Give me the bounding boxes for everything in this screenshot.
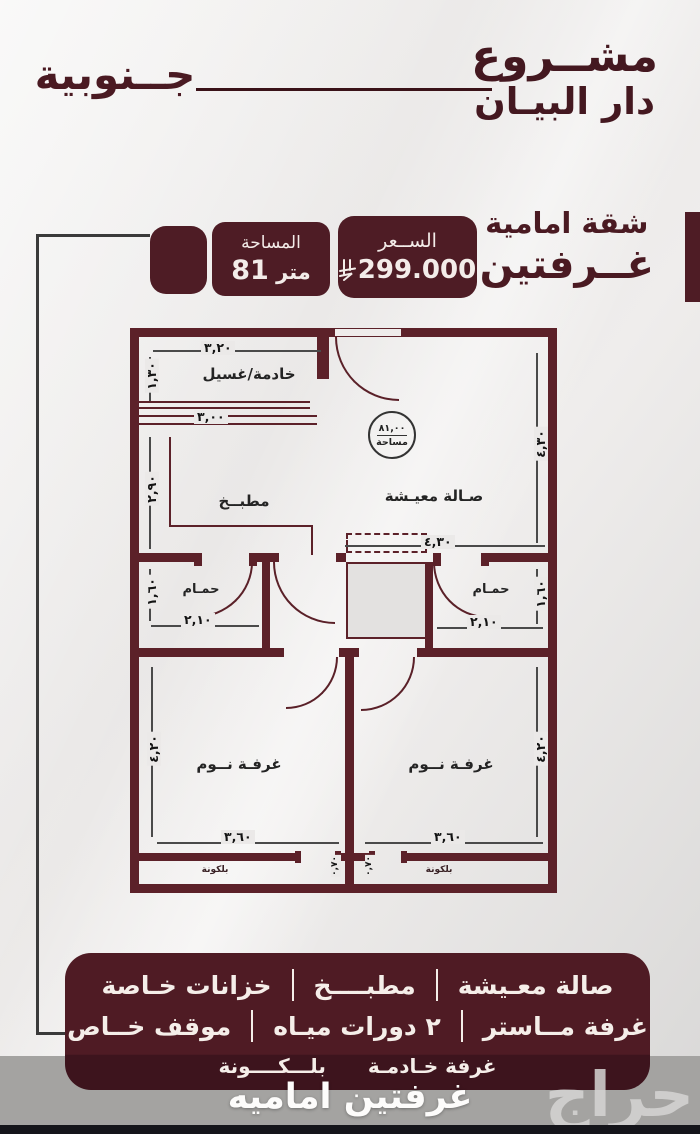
- riyal-symbol-icon: [339, 259, 356, 281]
- features-row-2: غرفة مــاستر ٢ دورات ميـاه موقف خــاص: [65, 1010, 650, 1042]
- dim-bed-left-height: ٤,٢٠: [147, 732, 161, 766]
- bedroom-divider-wall: [345, 657, 354, 884]
- door-jamb: [295, 851, 301, 863]
- apartment-type: شقة امامية غــرفتين: [480, 206, 654, 289]
- bedroom-left-door-arc: [286, 657, 338, 709]
- apartment-type-line1: شقة امامية: [480, 206, 654, 241]
- dim-maid-height: ١,٣٠: [145, 359, 159, 393]
- price-label: الســعر: [338, 230, 477, 252]
- feature-parking: موقف خــاص: [67, 1012, 231, 1041]
- bathroom-wall: [262, 562, 270, 648]
- dim-bath-left-height: ١,٦٠: [145, 575, 159, 609]
- wall-segment: [139, 553, 194, 562]
- price-value-row: 299.000: [338, 255, 477, 285]
- feature-separator: [461, 1010, 463, 1042]
- door-jamb: [401, 851, 407, 863]
- duct-dashed-outline: [346, 533, 427, 553]
- project-name: دار البيـان: [471, 81, 658, 122]
- feature-separator: [251, 1010, 253, 1042]
- kitchen-counter-line: [169, 437, 171, 527]
- hall-door-arc: [273, 562, 335, 624]
- bedroom-right-door-arc: [361, 657, 415, 711]
- room-label-bath-left: حمـام: [183, 582, 220, 597]
- price-value: 299.000: [358, 255, 476, 285]
- stamp-value: ٨١,٠٠: [379, 423, 406, 434]
- room-label-maid-laundry: خادمة/غسيل: [202, 365, 295, 383]
- connector-line-left: [36, 234, 39, 1034]
- area-badge: المساحة 81 متر: [212, 222, 330, 296]
- wall-segment: [487, 553, 548, 562]
- area-value: 81 متر: [212, 255, 330, 286]
- stamp-divider: [377, 435, 408, 436]
- shaft-box: [346, 562, 427, 639]
- dim-counter-width: ٣,٠٠: [194, 410, 228, 424]
- kitchen-counter-line: [169, 525, 313, 527]
- bottom-strip: [0, 1125, 700, 1134]
- feature-closets: خزانات خـاصة: [102, 971, 272, 1000]
- room-label-bed-right: غرفـة نــوم: [408, 755, 493, 773]
- counter-line: [139, 423, 317, 425]
- price-badge: الســعر 299.000: [338, 216, 477, 298]
- connector-line-top: [36, 234, 150, 237]
- counter-line: [139, 401, 310, 403]
- flyer-page: { "header": { "project_label": "مشــروع"…: [0, 0, 700, 1134]
- area-stamp: ٨١,٠٠ مساحة: [368, 411, 416, 459]
- dim-bath-right-height: ١,٦٠: [534, 577, 548, 611]
- dim-bed-right-height: ٤,٢٠: [534, 732, 548, 766]
- feature-maid-room: غرفة خـادمـة: [368, 1054, 497, 1078]
- room-label-kitchen: مطبــخ: [218, 492, 269, 510]
- area-label: المساحة: [212, 233, 330, 253]
- area-number: 81: [231, 255, 269, 286]
- wall-segment: [254, 553, 279, 562]
- project-title: مشــروع دار البيـان: [471, 32, 658, 123]
- entrance-door-arc: [335, 337, 399, 401]
- wall-stub: [317, 337, 329, 379]
- feature-kitchen: مطبــــخ: [314, 971, 416, 1000]
- dim-bed-right-width: ٣,٦٠: [431, 830, 465, 844]
- dim-maid-width: ٣,٢٠: [201, 341, 235, 355]
- kitchen-counter-line: [311, 525, 313, 555]
- dim-kitchen-height: ٢,٩٠: [145, 472, 159, 506]
- bottom-caption: غرفتين اماميه: [0, 1077, 700, 1117]
- stamp-label: مساحة: [376, 437, 408, 448]
- dim-bath-right-width: ٢,١٠: [467, 615, 501, 629]
- features-row-1: صالة معـيشة مطبــــخ خزانات خـاصة: [65, 969, 650, 1001]
- balcony-wall-segment: [139, 853, 299, 861]
- floor-plan: ٨١,٠٠ مساحة خادمة/غسيل مطبــخ صـالة معيـ…: [130, 328, 557, 893]
- room-label-balcony-right: بلكونة: [426, 865, 453, 875]
- dim-living-width: ٤,٣٠: [421, 535, 455, 549]
- dimension-line: [153, 350, 321, 352]
- balcony-wall-segment: [405, 853, 548, 861]
- dim-living-height: ٤,٣٠: [534, 427, 548, 461]
- title-divider-line: [196, 88, 492, 91]
- room-label-bed-left: غرفـة نــوم: [196, 755, 281, 773]
- apartment-type-line2: غــرفتين: [480, 241, 654, 289]
- connector-line-bottom: [36, 1032, 68, 1035]
- feature-separator: [436, 969, 438, 1001]
- room-label-living: صـالة معيـشة: [385, 487, 484, 505]
- orientation-label: جــنوبية: [30, 50, 200, 99]
- dim-bed-left-width: ٣,٦٠: [221, 830, 255, 844]
- wall-segment: [339, 648, 359, 657]
- room-label-balcony-left: بلكونة: [202, 865, 229, 875]
- room-label-bath-right: حمـام: [473, 582, 510, 597]
- dim-bath-left-width: ٢,١٠: [181, 613, 215, 627]
- feature-separator: [292, 969, 294, 1001]
- feature-master: غرفة مــاستر: [483, 1012, 648, 1041]
- feature-living: صالة معـيشة: [458, 971, 614, 1000]
- project-title-word: مشــروع: [471, 32, 658, 81]
- feature-balcony: بلـــكــــونة: [219, 1054, 326, 1078]
- wall-segment: [417, 648, 548, 657]
- right-edge-decoration: [685, 212, 700, 302]
- area-unit: متر: [276, 260, 311, 284]
- entrance-opening: [335, 329, 401, 336]
- mini-badge: [150, 226, 207, 294]
- wall-segment: [139, 648, 284, 657]
- dim-balcony-right-depth: ٠,٧٠: [365, 855, 375, 877]
- wall-segment: [336, 553, 346, 562]
- counter-line: [139, 415, 317, 417]
- feature-bathrooms: ٢ دورات ميـاه: [273, 1012, 441, 1041]
- dim-balcony-left-depth: ٠,٧٠: [331, 855, 341, 877]
